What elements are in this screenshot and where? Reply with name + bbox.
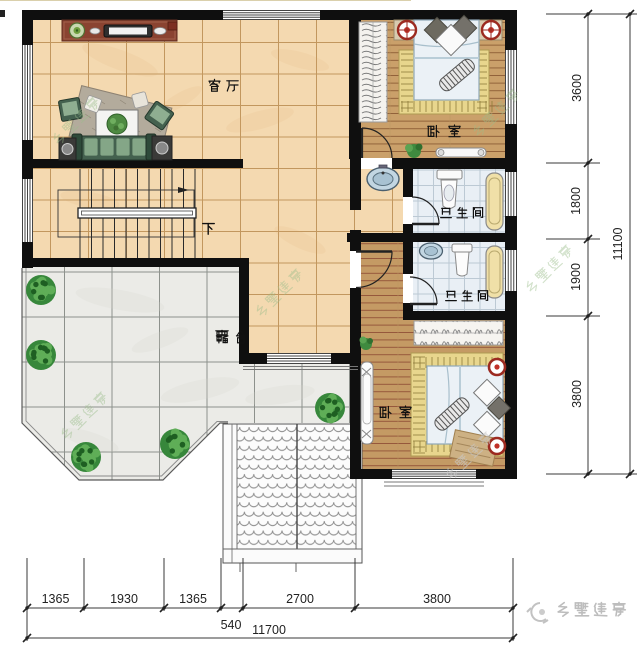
svg-text:1900: 1900: [569, 263, 583, 291]
svg-text:11700: 11700: [252, 623, 286, 637]
svg-text:2700: 2700: [286, 592, 314, 606]
svg-text:540: 540: [221, 618, 242, 632]
svg-text:3800: 3800: [570, 380, 584, 408]
svg-text:3800: 3800: [423, 592, 451, 606]
svg-text:1365: 1365: [179, 592, 207, 606]
svg-text:11100: 11100: [611, 228, 625, 261]
svg-text:1365: 1365: [42, 592, 70, 606]
svg-text:3600: 3600: [570, 74, 584, 102]
svg-text:1800: 1800: [569, 187, 583, 215]
svg-text:1930: 1930: [110, 592, 138, 606]
